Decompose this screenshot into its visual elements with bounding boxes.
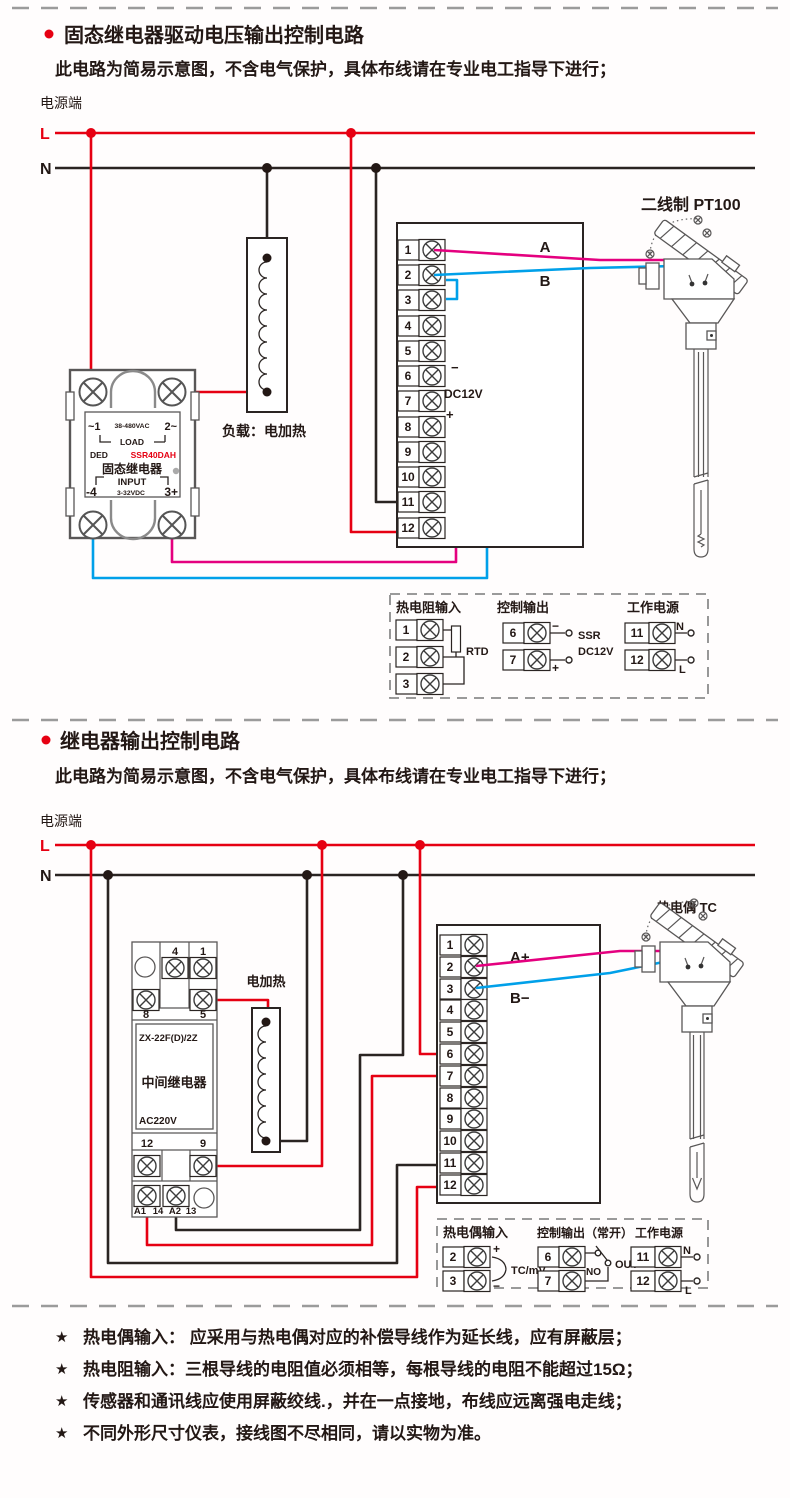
- terminal-row: 8: [398, 417, 445, 438]
- svg-text:4: 4: [405, 319, 412, 333]
- bullet-icon: [42, 736, 51, 745]
- svg-text:4: 4: [447, 1003, 454, 1017]
- star-icon: ★: [55, 1393, 68, 1410]
- terminal-row: 9: [440, 1109, 487, 1130]
- ssr-ac-terminal-2: 2~: [164, 421, 177, 433]
- legend-box-1: 热电阻输入 RTD 1 2 3 控制输出 6 7 − + SSR DC12V 工…: [390, 594, 708, 698]
- svg-text:12: 12: [636, 1274, 650, 1288]
- legend-terminal-row: 6: [503, 623, 550, 644]
- ssr-ac-rating: 38-480VAC: [114, 423, 149, 430]
- section1-header: 固态继电器驱动电压输出控制电路 此电路为简易示意图，不含电气保护，具体布线请在专…: [40, 23, 616, 111]
- ssr-input-label: INPUT: [118, 477, 147, 488]
- svg-text:7: 7: [447, 1069, 454, 1083]
- legend-terminal-row: 2: [443, 1247, 490, 1268]
- section1-diagram: L N ~1 38-480VAC 2~: [40, 126, 755, 698]
- thermocouple-sensor: 热电偶 TC: [635, 896, 748, 1202]
- wiring-diagram-page: 固态继电器驱动电压输出控制电路 此电路为简易示意图，不含电气保护，具体布线请在专…: [0, 0, 790, 1498]
- legend-ssr-label: SSR: [578, 630, 601, 642]
- relay-terminal-5-label: 5: [200, 1009, 206, 1021]
- svg-text:7: 7: [545, 1274, 552, 1288]
- terminal-row: 6: [398, 366, 445, 387]
- terminal-row: 4: [398, 316, 445, 337]
- diagram-canvas: 固态继电器驱动电压输出控制电路 此电路为简易示意图，不含电气保护，具体布线请在专…: [0, 0, 790, 1498]
- svg-text:2: 2: [450, 1250, 457, 1264]
- svg-text:3: 3: [450, 1274, 457, 1288]
- svg-text:10: 10: [443, 1134, 457, 1148]
- svg-text:10: 10: [401, 470, 415, 484]
- solid-state-relay: ~1 38-480VAC 2~ LOAD DED SSR40DAH 固态继电器 …: [66, 370, 199, 539]
- terminal-row: 9: [398, 442, 445, 463]
- svg-text:3: 3: [403, 677, 410, 691]
- ssr-brand: DED: [90, 450, 108, 460]
- legend-n-label: N: [676, 621, 684, 633]
- svg-text:2: 2: [405, 268, 412, 282]
- bullet-icon: [45, 30, 54, 39]
- svg-text:8: 8: [405, 420, 412, 434]
- terminal-row: 11: [398, 492, 445, 513]
- star-icon: ★: [55, 1329, 68, 1346]
- svg-text:3: 3: [405, 293, 412, 307]
- line-l-label: L: [40, 126, 50, 143]
- relay-coil-a2-label: A2: [169, 1206, 181, 1217]
- svg-text:12: 12: [401, 521, 415, 535]
- terminal-row: 11: [440, 1153, 487, 1174]
- relay-model: ZX-22F(D)/2Z: [139, 1033, 198, 1044]
- svg-text:7: 7: [510, 653, 517, 667]
- legend-pwr-title: 工作电源: [635, 1225, 683, 1240]
- terminal-row: 6: [440, 1044, 487, 1065]
- section2-diagram: L N 4 1 8 5 ZX-22F(D)/2Z 中间继电器 AC22: [40, 838, 755, 1297]
- rtd-wire-b-label: B: [540, 273, 551, 290]
- ssr-name: 固态继电器: [102, 461, 163, 476]
- svg-text:3: 3: [447, 982, 454, 996]
- svg-text:9: 9: [447, 1112, 454, 1126]
- svg-text:5: 5: [405, 344, 412, 358]
- legend-no-label: NO: [586, 1267, 601, 1278]
- relay-terminal-9-label: 9: [200, 1138, 206, 1150]
- note-item: 不同外形尺寸仪表，接线图不尽相同，请以实物为准。: [83, 1423, 491, 1443]
- relay-terminal-12-label: 12: [141, 1138, 153, 1150]
- output-minus-label: −: [451, 360, 459, 375]
- terminal-row: 1: [440, 935, 487, 956]
- relay-voltage: AC220V: [139, 1116, 177, 1127]
- section1-subtitle: 此电路为简易示意图，不含电气保护，具体布线请在专业电工指导下进行；: [55, 59, 616, 79]
- svg-text:6: 6: [545, 1250, 552, 1264]
- svg-text:6: 6: [405, 369, 412, 383]
- tc-wire-b-label: B−: [510, 990, 530, 1007]
- svg-text:1: 1: [403, 623, 410, 637]
- svg-text:1: 1: [405, 243, 412, 257]
- svg-text:8: 8: [447, 1091, 454, 1105]
- relay-terminal-13-label: 13: [186, 1206, 197, 1217]
- svg-text:11: 11: [631, 626, 644, 640]
- legend-l-label: L: [679, 664, 686, 676]
- relay-terminal-8-label: 8: [143, 1009, 149, 1021]
- terminal-row: 12: [398, 518, 445, 539]
- legend-terminal-row: 2: [396, 647, 443, 668]
- output-dc12v-label: DC12V: [444, 387, 483, 401]
- ssr-terminal4-screw: [80, 512, 107, 539]
- legend-rtd-title: 热电阻输入: [396, 600, 461, 615]
- terminal-row: 5: [440, 1022, 487, 1043]
- legend-l-label: L: [685, 1285, 692, 1297]
- legend-terminal-row: 11: [625, 623, 675, 644]
- legend-out-minus: −: [552, 619, 559, 633]
- svg-text:6: 6: [510, 626, 517, 640]
- note-item: 传感器和通讯线应使用屏蔽绞线.，并在一点接地，布线应远离强电走线；: [82, 1391, 632, 1411]
- ssr-input-neg: -4: [86, 485, 97, 499]
- power-terminal-label: 电源端: [40, 813, 82, 829]
- star-icon: ★: [55, 1425, 68, 1442]
- note-item: 热电阻输入：三根导线的电阻值必须相等，每根导线的电阻不能超过15Ω；: [83, 1359, 643, 1379]
- relay-terminal-14-label: 14: [153, 1206, 164, 1217]
- section2-header: 继电器输出控制电路 此电路为简易示意图，不含电气保护，具体布线请在专业电工指导下…: [40, 729, 616, 829]
- ssr-input-pos: 3+: [164, 485, 178, 499]
- legend-box-2: 热电偶输入 2 3 + − TC/mV 控制输出（常开） 6 7 NO OUT …: [437, 1219, 708, 1297]
- legend-out-title: 控制输出: [497, 600, 549, 615]
- pt100-label: 二线制 PT100: [641, 195, 741, 214]
- terminal-row: 7: [398, 391, 445, 412]
- relay-terminal-4-label: 4: [172, 946, 179, 958]
- svg-text:5: 5: [447, 1025, 454, 1039]
- ssr-model: SSR40DAH: [131, 450, 176, 460]
- terminal-row: 2: [440, 957, 487, 978]
- relay-coil-a1-label: A1: [134, 1206, 147, 1217]
- legend-n-label: N: [683, 1245, 691, 1257]
- svg-text:12: 12: [443, 1178, 457, 1192]
- svg-text:1: 1: [447, 938, 454, 952]
- star-icon: ★: [55, 1361, 68, 1378]
- ssr-terminal3-screw: [159, 512, 186, 539]
- ssr-terminal2-screw: [159, 379, 186, 406]
- svg-text:11: 11: [444, 1156, 457, 1170]
- line-l-label: L: [40, 838, 50, 855]
- power-terminal-label: 电源端: [40, 95, 82, 111]
- controller-terminal-block-2: 1 2 3 4 5 6 7 8 9 10 11 12 A+ B−: [437, 925, 600, 1203]
- terminal-row: 3: [398, 290, 445, 311]
- line-n-label: N: [40, 161, 52, 178]
- footer-notes: ★ 热电偶输入： 应采用与热电偶对应的补偿导线作为延长线，应有屏蔽层； ★ 热电…: [55, 1327, 643, 1443]
- legend-terminal-row: 7: [538, 1271, 585, 1292]
- svg-text:11: 11: [637, 1250, 650, 1264]
- terminal-row: 7: [440, 1066, 487, 1087]
- ssr-ac-terminal-1: ~1: [88, 421, 101, 433]
- output-plus-label: +: [446, 407, 454, 422]
- terminal-row: 10: [440, 1131, 487, 1152]
- legend-terminal-row: 12: [625, 650, 675, 671]
- terminal-row: 3: [440, 979, 487, 1000]
- legend-terminal-row: 3: [396, 674, 443, 695]
- heater-label: 电加热: [246, 974, 285, 989]
- rtd-wire-a-label: A: [540, 239, 551, 256]
- ssr-terminal1-screw: [80, 379, 107, 406]
- relay-terminal-1-label: 1: [200, 946, 206, 958]
- ssr-load-label: LOAD: [120, 437, 144, 447]
- legend-pwr-title: 工作电源: [627, 600, 679, 615]
- legend-tc-plus: +: [493, 1242, 500, 1256]
- ssr-dc-rating: 3-32VDC: [117, 490, 145, 497]
- terminal-row: 10: [398, 467, 445, 488]
- line-n-label: N: [40, 868, 52, 885]
- legend-terminal-row: 7: [503, 650, 550, 671]
- section2-title: 继电器输出控制电路: [60, 729, 241, 753]
- legend-tc-title: 热电偶输入: [443, 1225, 508, 1240]
- terminal-row: 12: [440, 1175, 487, 1196]
- svg-text:12: 12: [630, 653, 644, 667]
- legend-rtd-label: RTD: [466, 646, 489, 658]
- svg-text:2: 2: [447, 960, 454, 974]
- svg-text:7: 7: [405, 394, 412, 408]
- legend-out-title: 控制输出（常开）: [537, 1225, 633, 1240]
- section1-title: 固态继电器驱动电压输出控制电路: [64, 23, 365, 47]
- legend-terminal-row: 12: [631, 1271, 681, 1292]
- legend-terminal-row: 3: [443, 1271, 490, 1292]
- svg-text:2: 2: [403, 650, 410, 664]
- pt100-sensor: 二线制 PT100: [639, 195, 752, 557]
- section2-subtitle: 此电路为简易示意图，不含电气保护，具体布线请在专业电工指导下进行；: [55, 766, 616, 786]
- terminal-row: 4: [440, 1000, 487, 1021]
- legend-dc12v-label: DC12V: [578, 646, 614, 658]
- relay-name: 中间继电器: [141, 1075, 207, 1090]
- intermediate-relay: 4 1 8 5 ZX-22F(D)/2Z 中间继电器 AC220V 12 9 A…: [132, 942, 217, 1217]
- legend-out-plus: +: [552, 661, 559, 675]
- svg-text:6: 6: [447, 1047, 454, 1061]
- note-item: 热电偶输入： 应采用与热电偶对应的补偿导线作为延长线，应有屏蔽层；: [83, 1327, 632, 1347]
- svg-text:9: 9: [405, 445, 412, 459]
- terminal-row: 8: [440, 1088, 487, 1109]
- heater-load-label: 负载：电加热: [222, 423, 306, 439]
- svg-text:11: 11: [402, 495, 415, 509]
- legend-terminal-row: 1: [396, 620, 443, 641]
- terminal-row: 5: [398, 341, 445, 362]
- legend-terminal-row: 11: [631, 1247, 681, 1268]
- legend-terminal-row: 6: [538, 1247, 585, 1268]
- heater-load: 负载：电加热: [222, 238, 306, 439]
